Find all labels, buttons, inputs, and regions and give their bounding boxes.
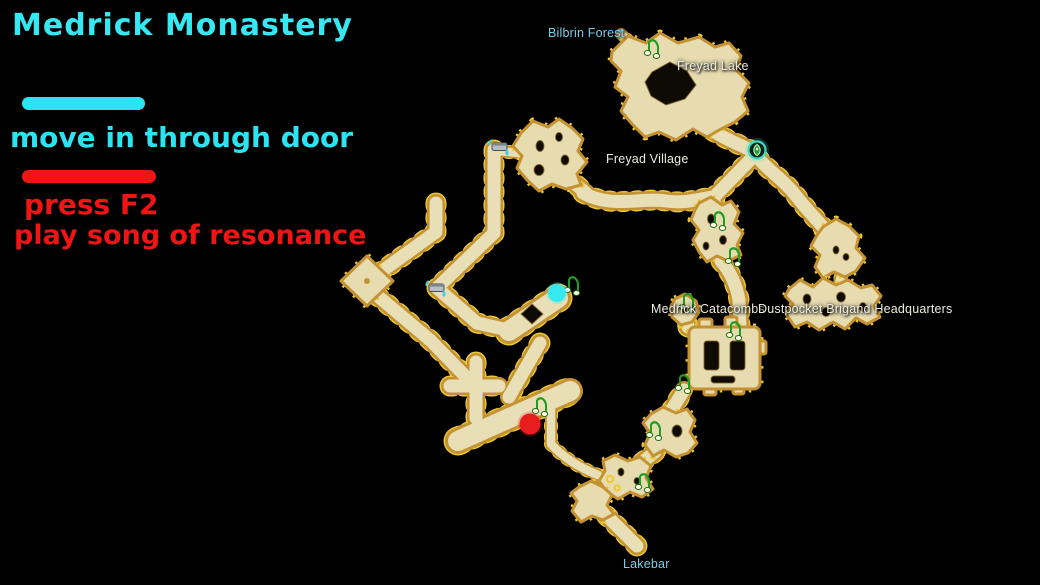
legend-resonance-key: press F2 [24, 188, 159, 221]
map-label-freyad-village: Freyad Village [606, 152, 688, 166]
legend-resonance-swatch [22, 170, 156, 183]
area-catacombs [689, 317, 766, 395]
area-note-hollow [691, 197, 743, 262]
area-south-cross [571, 481, 614, 522]
map-label-dustpocket-hq: Dustpocket Brigand Headquarters [758, 302, 953, 316]
map-label-lakebar: Lakebar [623, 557, 670, 571]
legend-door-label: move in through door [10, 121, 353, 154]
area-freyad-lake [611, 33, 749, 140]
page-title: Medrick Monastery [12, 8, 353, 43]
screenshot-root: Bilbrin Forest Freyad Lake Freyad Villag… [0, 0, 1040, 585]
legend-resonance-action: play song of resonance [14, 220, 366, 251]
map-label-bilbrin-forest: Bilbrin Forest [548, 26, 624, 40]
legend-door-swatch [22, 97, 145, 110]
portal-icon [745, 138, 769, 162]
map-label-freyad-lake: Freyad Lake [677, 59, 749, 73]
map-label-medrick-catacombs: Medrick Catacombs [651, 302, 765, 316]
area-water-room [513, 119, 587, 191]
resonance-marker-dot [518, 412, 543, 437]
door-marker-dot [546, 282, 568, 304]
map-canvas [0, 0, 1040, 585]
